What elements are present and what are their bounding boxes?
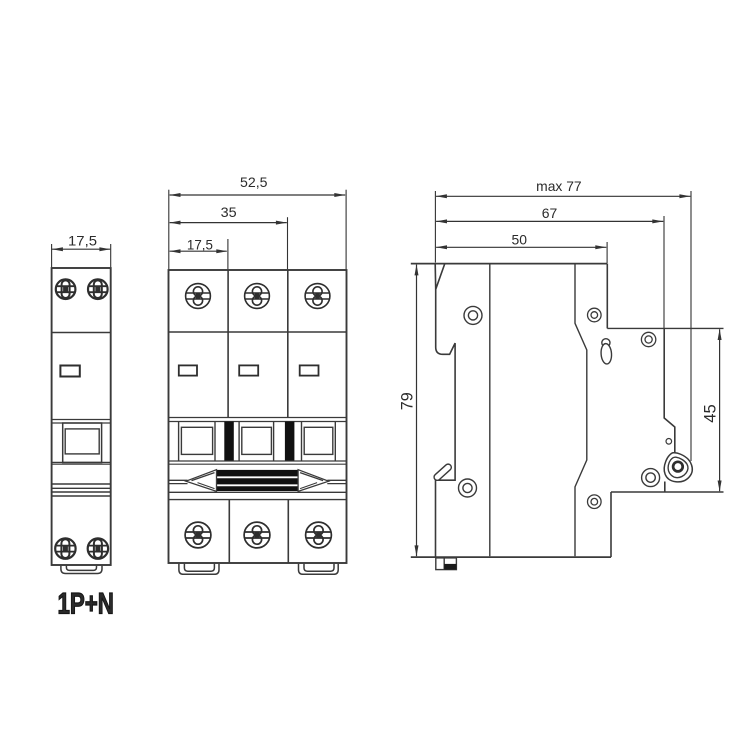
svg-text:50: 50	[512, 231, 528, 247]
svg-text:79: 79	[398, 392, 416, 410]
svg-text:45: 45	[702, 404, 720, 423]
svg-text:67: 67	[542, 205, 558, 221]
svg-text:17,5: 17,5	[187, 236, 213, 252]
svg-text:1P+N: 1P+N	[57, 588, 114, 621]
svg-text:17,5: 17,5	[68, 233, 97, 249]
svg-text:35: 35	[221, 204, 237, 220]
svg-text:max 77: max 77	[536, 178, 582, 194]
svg-text:52,5: 52,5	[240, 174, 268, 190]
